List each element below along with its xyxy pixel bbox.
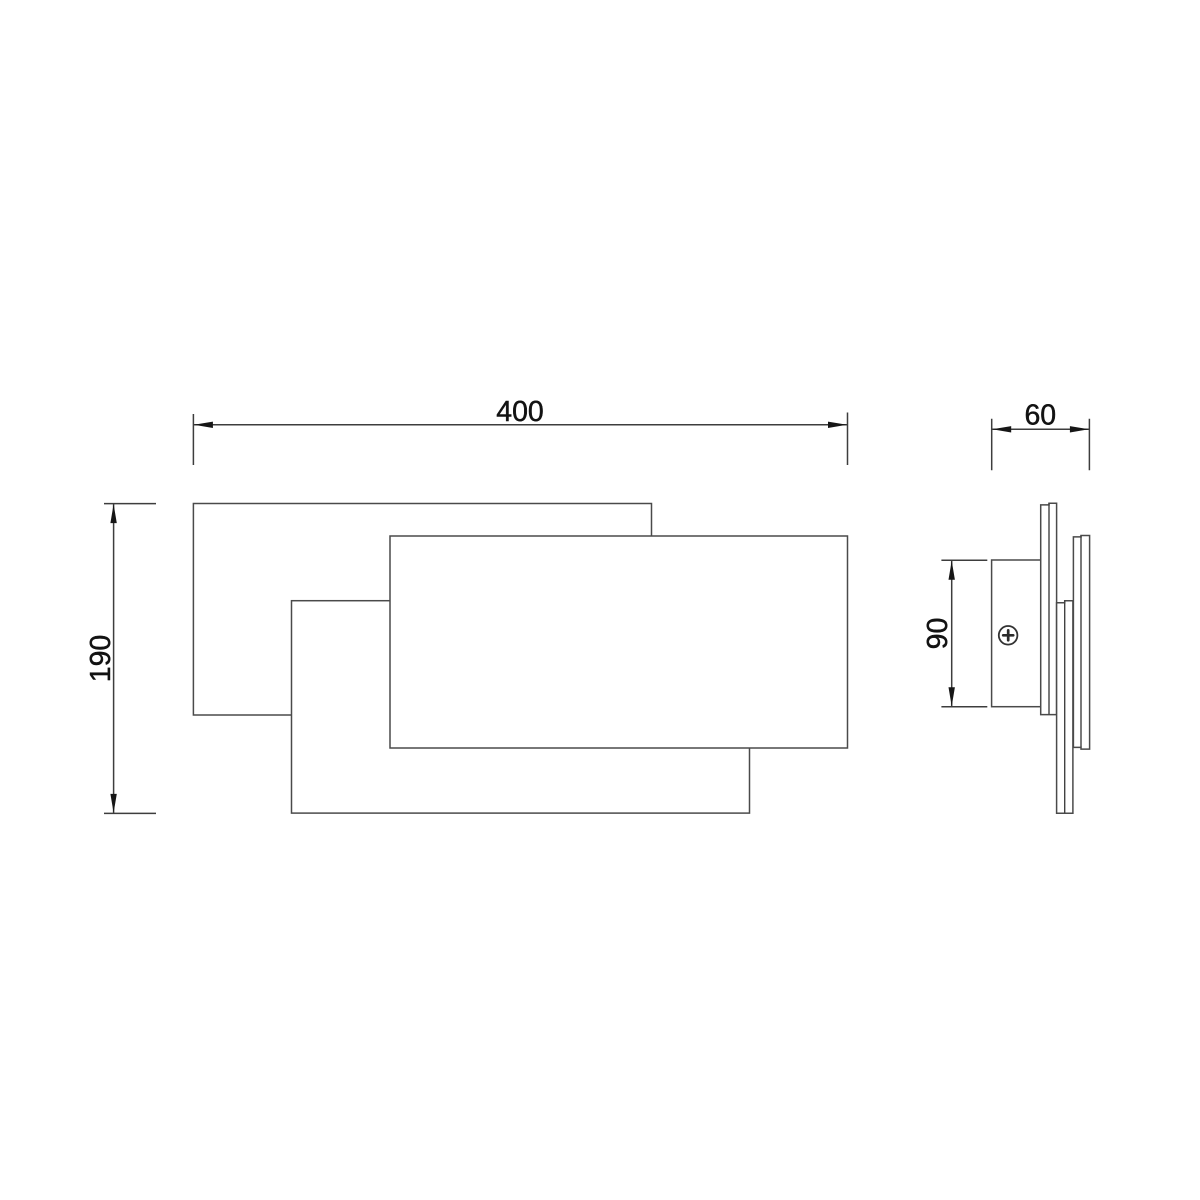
svg-text:90: 90: [922, 618, 954, 650]
svg-text:190: 190: [85, 635, 117, 683]
svg-text:60: 60: [1024, 400, 1056, 432]
svg-text:400: 400: [496, 396, 544, 428]
